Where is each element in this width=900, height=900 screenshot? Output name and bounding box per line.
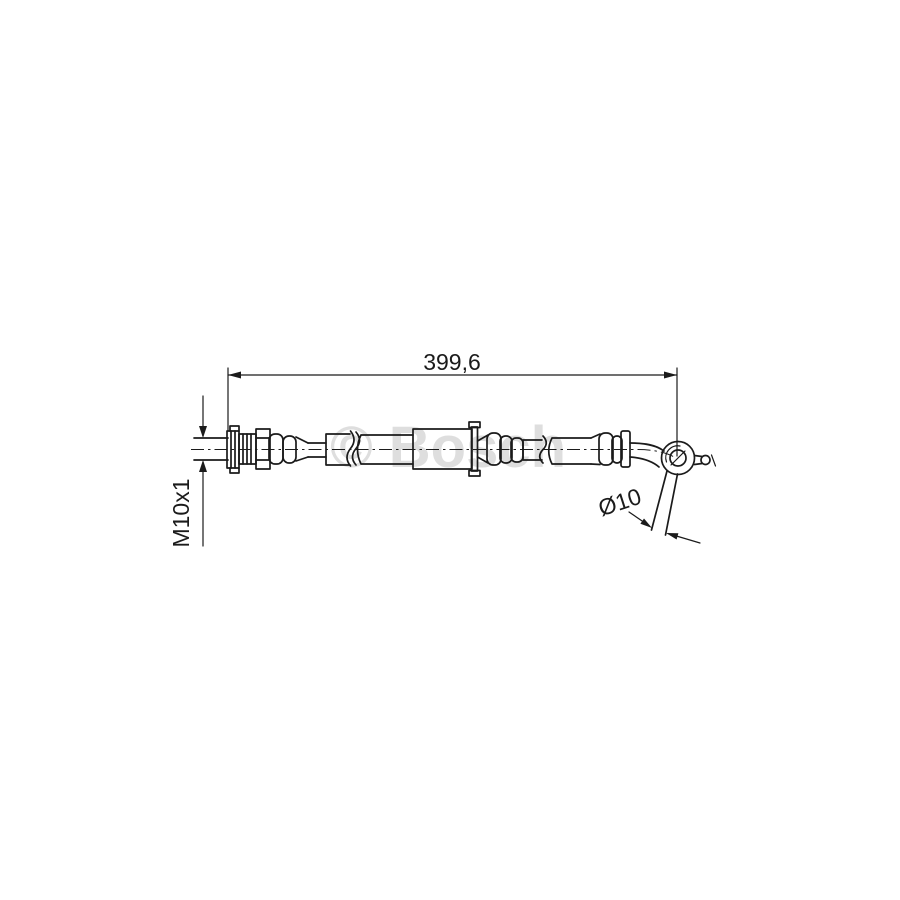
dimension-diameter: Ø10 xyxy=(595,483,700,543)
brake-hose-technical-drawing: © Bosch xyxy=(0,0,900,900)
bleeder-pin-tip xyxy=(701,456,710,465)
arrowhead xyxy=(640,519,652,529)
dimension-diameter-value: Ø10 xyxy=(595,483,644,521)
leader-lines xyxy=(629,512,700,543)
arrowhead xyxy=(199,460,207,472)
down-pipe xyxy=(652,471,678,535)
dimension-thread-value: M10x1 xyxy=(168,478,194,547)
arrowhead xyxy=(664,372,677,379)
arrowhead xyxy=(199,426,207,438)
dimension-length-value: 399,6 xyxy=(423,349,481,375)
arrowhead xyxy=(228,372,241,379)
arrowhead xyxy=(666,533,678,540)
curved-neck xyxy=(630,443,664,467)
dimension-thread: M10x1 xyxy=(168,396,207,548)
product-drawing-canvas: © Bosch xyxy=(0,0,900,900)
banjo-center-mark xyxy=(671,451,685,465)
banjo-fitting xyxy=(652,442,716,536)
bosch-watermark: © Bosch xyxy=(330,415,566,480)
bleeder-pin-tick xyxy=(712,455,716,466)
